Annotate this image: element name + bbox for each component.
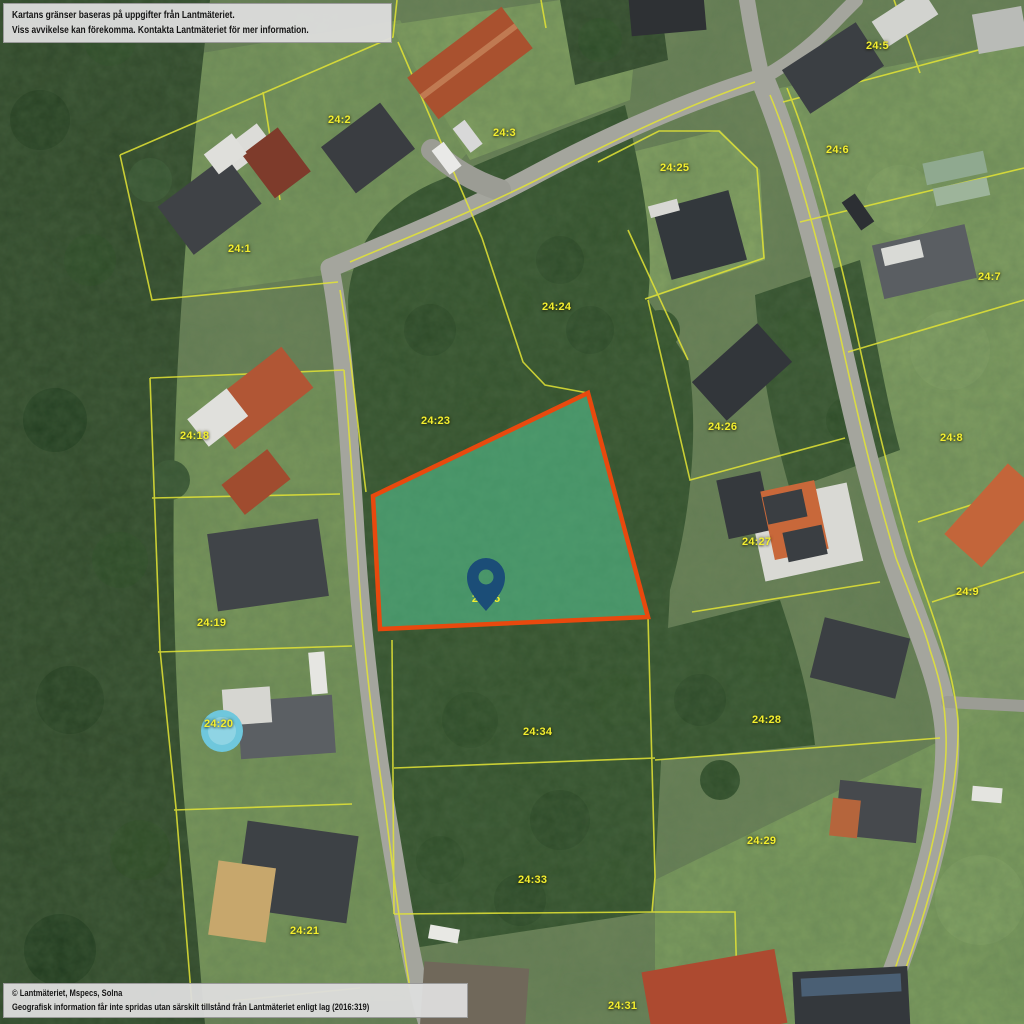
disclaimer-line-1: Kartans gränser baseras på uppgifter frå…: [12, 8, 309, 23]
attribution-line-1: © Lantmäteriet, Mspecs, Solna: [12, 987, 369, 1000]
disclaimer-line-2: Viss avvikelse kan förekomma. Kontakta L…: [12, 23, 309, 38]
map-viewport[interactable]: 24:35 24:124:224:324:524:624:724:824:924…: [0, 0, 1024, 1024]
map-disclaimer: Kartans gränser baseras på uppgifter frå…: [3, 3, 392, 43]
aerial-photo: 24:35: [0, 0, 1024, 1024]
attribution-line-2: Geografisk information får inte spridas …: [12, 1001, 369, 1014]
map-attribution: © Lantmäteriet, Mspecs, Solna Geografisk…: [3, 983, 468, 1018]
